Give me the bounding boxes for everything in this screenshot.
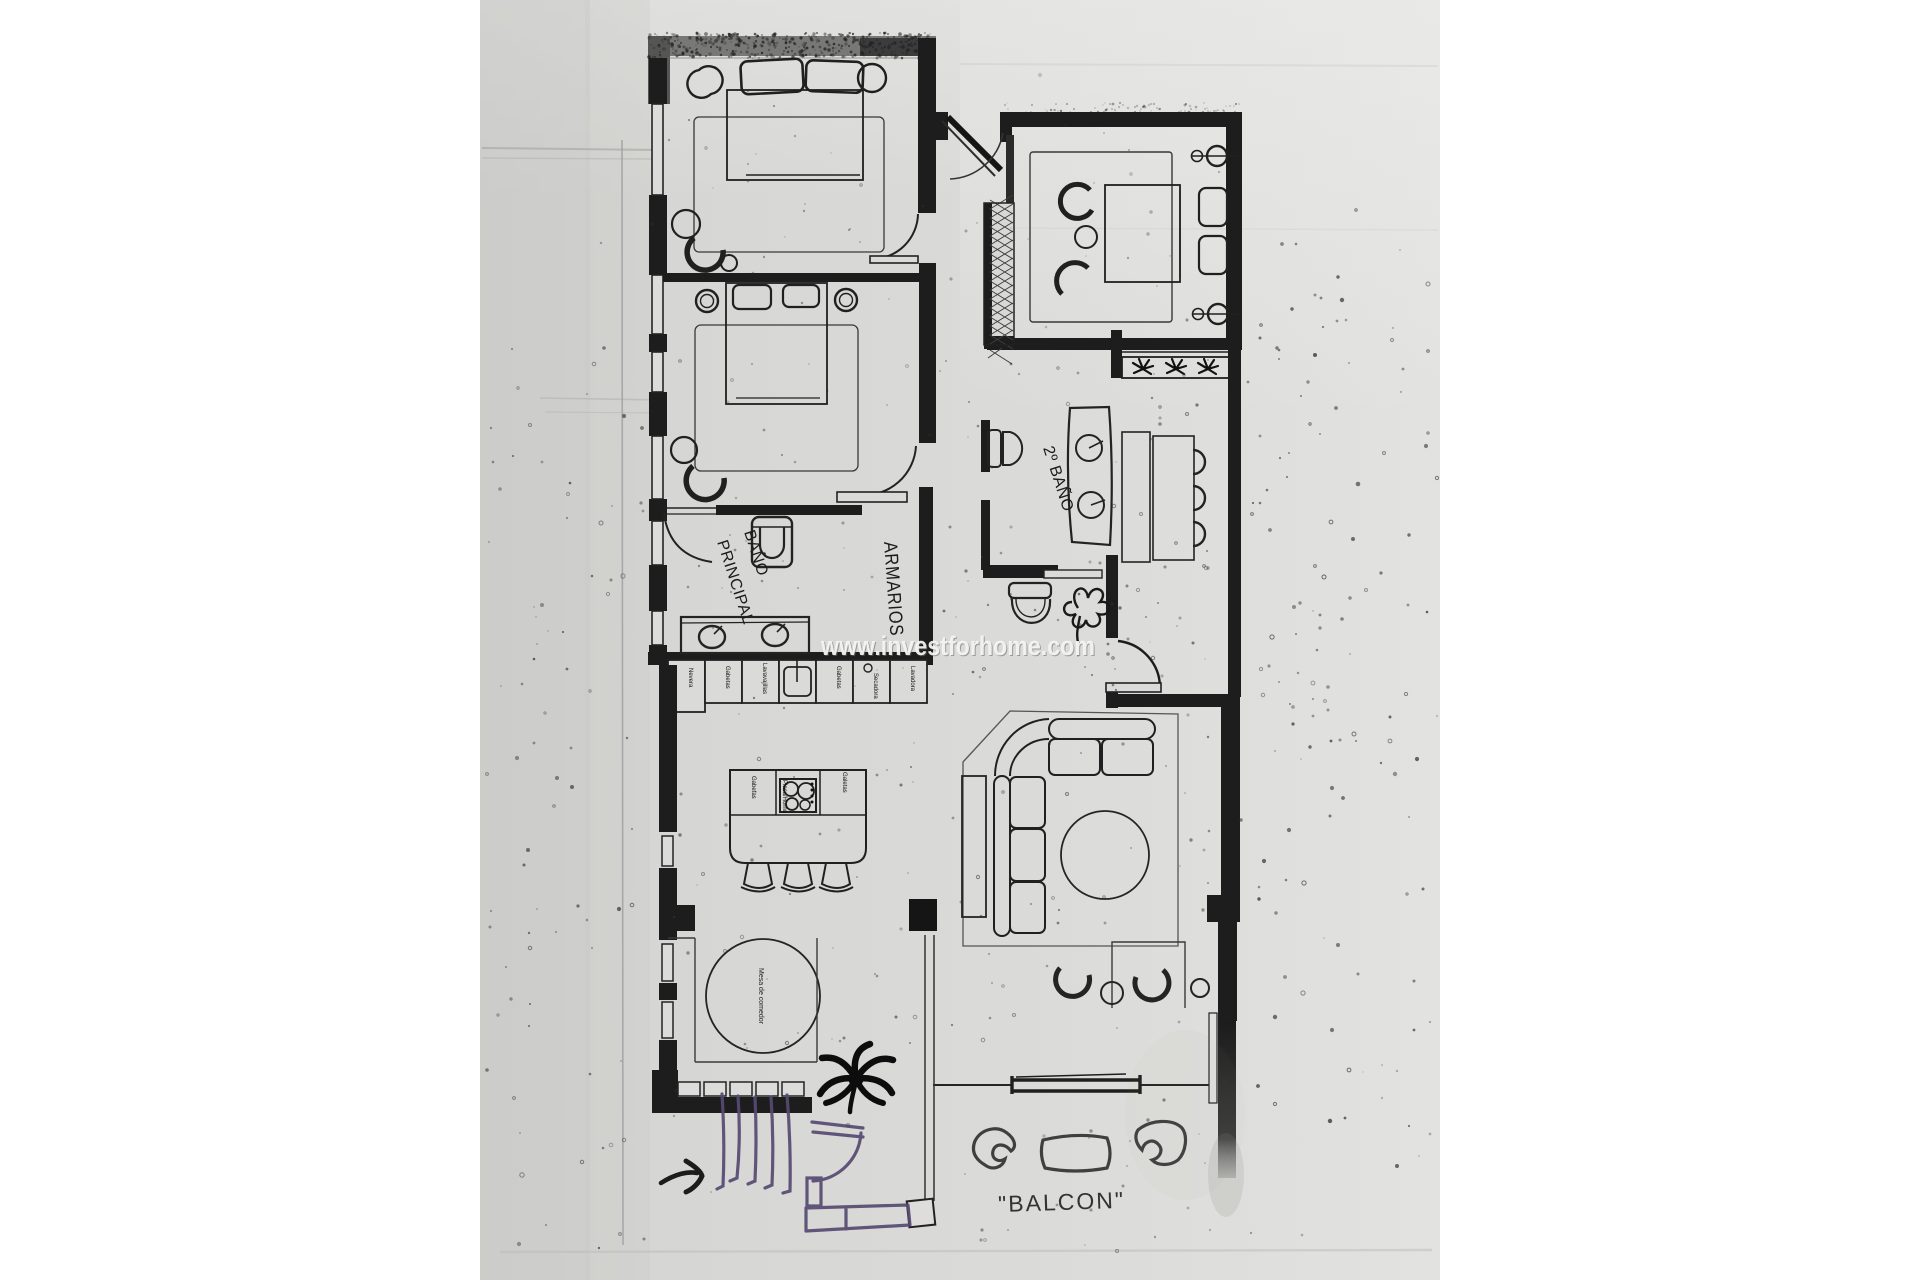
svg-text:Lavavajillas: Lavavajillas — [761, 663, 767, 694]
svg-text:Nevera: Nevera — [687, 668, 693, 688]
svg-text:Placa/Horno: Placa/Horno — [781, 780, 787, 814]
svg-text:www.investforhome.com: www.investforhome.com — [820, 631, 1095, 661]
svg-text:Lavadora: Lavadora — [909, 666, 915, 692]
svg-text:Gabetas: Gabetas — [750, 776, 756, 799]
svg-text:Galetas: Galetas — [841, 772, 847, 793]
svg-text:"BALCON": "BALCON" — [998, 1187, 1126, 1217]
svg-text:Mesa de comedor: Mesa de comedor — [757, 968, 764, 1025]
svg-text:Secadora: Secadora — [872, 673, 878, 699]
svg-text:Gabetas: Gabetas — [724, 666, 730, 689]
svg-text:Gabetas: Gabetas — [835, 666, 841, 689]
